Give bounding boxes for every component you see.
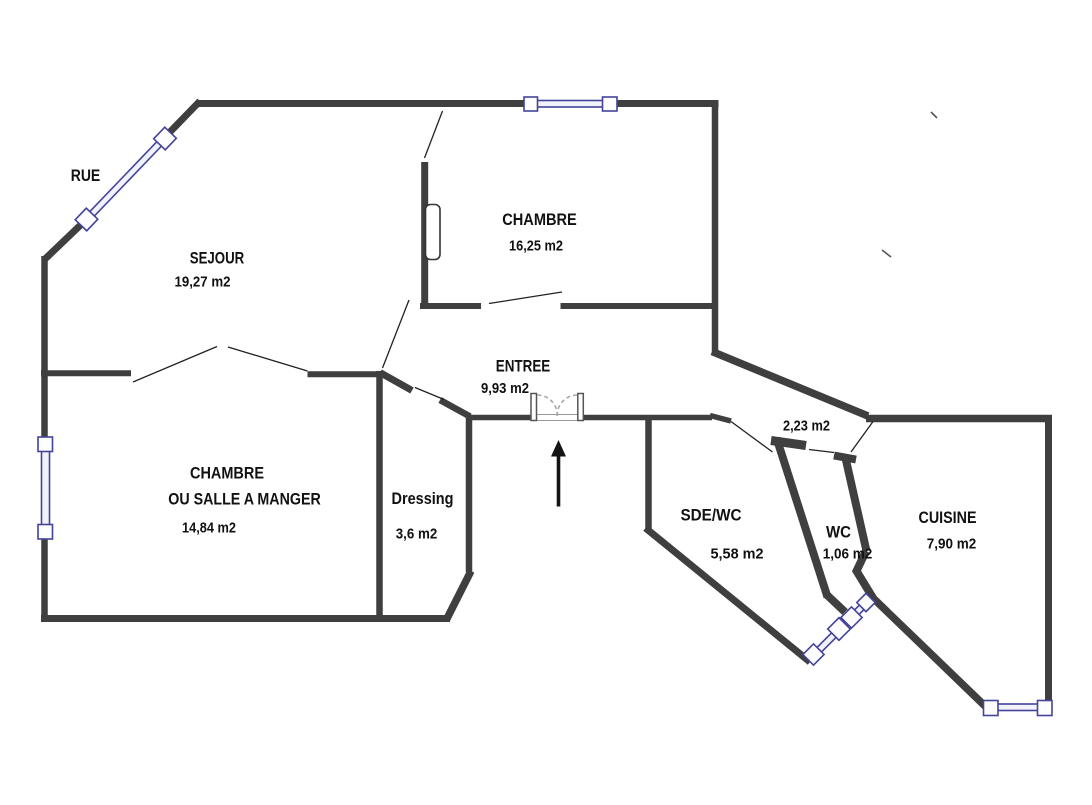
svg-text:2,23 m2: 2,23 m2 bbox=[783, 418, 830, 435]
svg-text:Dressing: Dressing bbox=[392, 489, 454, 508]
svg-text:CUISINE: CUISINE bbox=[919, 508, 977, 527]
svg-text:5,58 m2: 5,58 m2 bbox=[711, 546, 764, 563]
svg-text:14,84 m2: 14,84 m2 bbox=[182, 520, 236, 537]
svg-text:SDE/WC: SDE/WC bbox=[681, 506, 742, 525]
svg-text:CHAMBRE: CHAMBRE bbox=[190, 464, 264, 483]
svg-text:19,27 m2: 19,27 m2 bbox=[175, 274, 231, 291]
svg-text:SEJOUR: SEJOUR bbox=[190, 249, 245, 268]
svg-text:1,06 m2: 1,06 m2 bbox=[823, 546, 873, 563]
svg-text:CHAMBRE: CHAMBRE bbox=[502, 210, 577, 229]
svg-text:OU SALLE A MANGER: OU SALLE A MANGER bbox=[168, 490, 321, 509]
svg-text:ENTREE: ENTREE bbox=[496, 357, 551, 376]
svg-text:9,93 m2: 9,93 m2 bbox=[481, 380, 529, 397]
svg-text:RUE: RUE bbox=[71, 166, 101, 185]
svg-text:7,90 m2: 7,90 m2 bbox=[927, 536, 977, 553]
svg-text:WC: WC bbox=[826, 523, 851, 542]
svg-text:3,6 m2: 3,6 m2 bbox=[396, 526, 438, 543]
svg-text:16,25 m2: 16,25 m2 bbox=[509, 238, 563, 255]
